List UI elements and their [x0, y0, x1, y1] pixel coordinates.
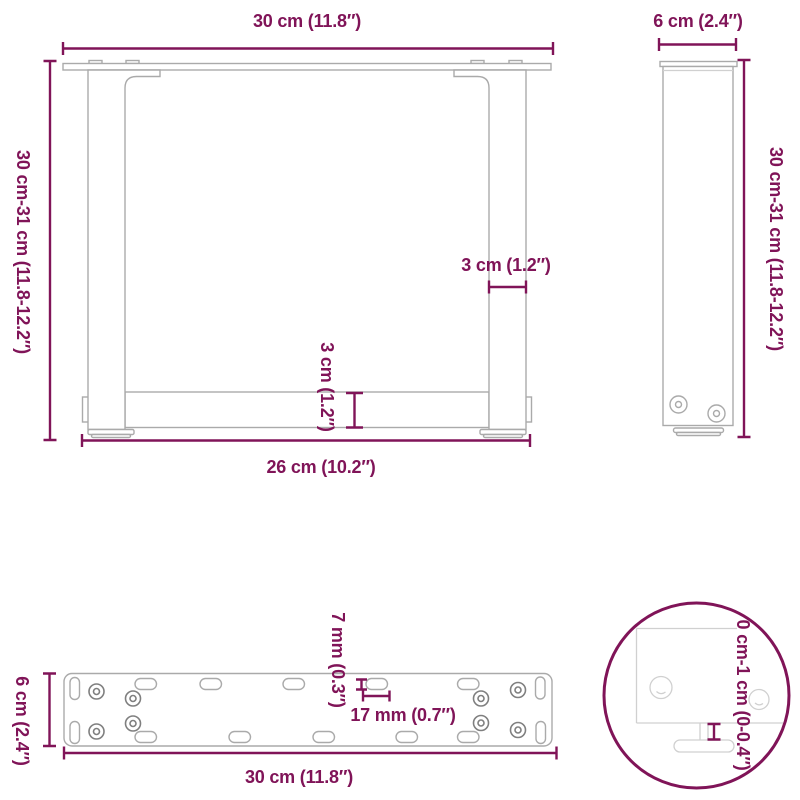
- front-height-label: 30 cm-31 cm (11.8-12.2″): [14, 150, 32, 354]
- plate-slot-length-label: 17 mm (0.7″): [350, 706, 455, 724]
- foot-detail-drawing: [604, 603, 789, 788]
- bottom-crossbar: [125, 392, 489, 428]
- drawing-svg: [0, 0, 800, 800]
- side-view-drawing: [659, 38, 751, 437]
- technical-drawing-canvas: 30 cm (11.8″) 30 cm-31 cm (11.8-12.2″) 3…: [0, 0, 800, 800]
- side-leg-body: [663, 67, 733, 426]
- left-foot-plate: [88, 430, 134, 435]
- top-mounting-plate: [63, 64, 551, 71]
- plate-depth-dimension: [43, 674, 56, 747]
- left-foot-disc: [92, 435, 131, 438]
- right-foot-disc: [484, 435, 523, 438]
- adjustable-foot: [674, 740, 734, 752]
- side-height-dimension: [738, 60, 751, 437]
- front-width-dimension: [63, 42, 553, 55]
- plate-depth-label: 6 cm (2.4″): [13, 676, 31, 765]
- side-plate-edge: [660, 62, 737, 67]
- side-foot-disc: [677, 433, 721, 436]
- front-height-dimension: [44, 61, 57, 440]
- front-view-drawing: [44, 42, 554, 447]
- front-width-label: 30 cm (11.8″): [253, 12, 361, 30]
- detail-circle: [604, 603, 789, 788]
- front-leg-width-label: 3 cm (1.2″): [461, 256, 550, 274]
- front-inner-width-label: 26 cm (10.2″): [266, 458, 375, 476]
- left-leg: [88, 70, 160, 430]
- side-depth-dimension: [659, 38, 736, 51]
- front-inner-width-dimension: [82, 434, 530, 447]
- front-crossbar-label: 3 cm (1.2″): [318, 342, 336, 431]
- side-depth-label: 6 cm (2.4″): [653, 12, 742, 30]
- plate-width-label: 30 cm (11.8″): [245, 768, 353, 786]
- plate-slot-height-label: 7 mm (0.3″): [329, 612, 347, 707]
- foot-adjustment-label: 0 cm-1 cm (0-0.4″): [734, 619, 752, 770]
- side-height-label: 30 cm-31 cm (11.8-12.2″): [767, 147, 785, 351]
- right-leg: [454, 70, 526, 430]
- right-foot-plate: [480, 430, 526, 435]
- plate-width-dimension: [64, 747, 557, 760]
- plate-top-view-drawing: [43, 674, 557, 760]
